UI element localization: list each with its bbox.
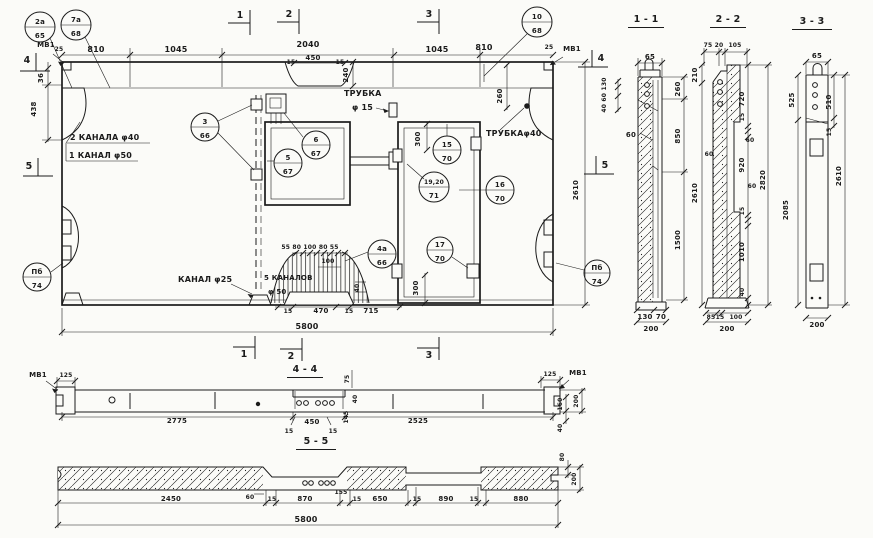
callout-top-label: 19,20 [424,179,444,186]
callout-top-label: Пб [591,264,602,272]
dim-label: 20 [715,42,724,49]
callout-top-label: 6 [313,136,318,144]
dim-label: 60 [748,183,757,190]
callout-top-label: 17 [435,241,445,249]
callout-top-label: 2а [35,18,45,26]
callout-circle: 7а68 [61,10,91,40]
callout-top-label: 7а [71,16,81,24]
callout-circle: 2а65 [25,12,55,42]
dim-label: 2610 [572,180,580,200]
dim-label: 15 [268,496,277,503]
dim-label: 300 [414,131,422,146]
dim-label: 2450 [161,495,181,503]
callout-top-label: 15 [442,141,452,149]
dim-label: 870 [297,495,312,503]
dim-label: 200 [573,394,580,407]
dim-label: 260 [674,81,682,96]
dim-label: 60 [705,151,714,158]
svg-text:4: 4 [598,53,605,64]
dim-label: 60 [246,494,255,501]
callout-circle: Пб74 [23,263,51,291]
callout-bottom-label: 68 [71,30,81,38]
section-title: 3 - 3 [800,16,825,27]
section-4-4: 4 - 4 МВ1 125 2775 75 40 145 15 450 15 2… [29,364,587,435]
svg-text:5: 5 [26,161,33,172]
dim-label: 650 [372,495,387,503]
callout-top-label: 10 [532,13,542,21]
dim-label: 2820 [759,170,767,190]
dim-label: 40 [354,284,361,293]
dim-label: 25 [545,44,554,51]
callout-circle: 567 [274,149,302,177]
anchor-label-mv1: МВ1 [563,45,581,53]
embed-box [266,94,286,113]
dim-label: 200 [809,321,824,329]
dim-label: 75 [704,42,713,49]
dim-label: 880 [513,495,528,503]
dim-label: 2040 [296,40,319,49]
dim-label: 890 [438,495,453,503]
overall-dim: 5800 [295,322,318,331]
tube-15-symbol [389,103,397,117]
label-tube-15: φ 15 [352,103,373,112]
callout-circle: 1570 [433,136,461,164]
section-title: 4 - 4 [293,364,318,375]
dim-label: 2610 [691,183,699,203]
callout-circle: 1670 [486,176,514,204]
lifting-loop [813,64,822,75]
dim-label: 25 [55,46,64,53]
callout-bottom-label: 70 [442,155,452,163]
dim-label: 125 [59,372,72,379]
svg-text:3: 3 [426,9,433,20]
dim-label: 155 [334,489,347,496]
callout-circle: 1068 [522,7,552,37]
dim-label: 40 [557,424,564,433]
section-2-2: 2 - 2 75 20 105 210 2610 720 15 60 920 6… [691,14,772,333]
svg-text:3: 3 [426,350,433,361]
section-title: 2 - 2 [716,14,741,25]
dim-label: 525 [788,92,796,107]
blueprint-page: 25 810 1045 2040 1045 810 25 15 450 15 2… [0,0,873,538]
dim-label: 15 [826,128,833,137]
callout-circle: 1770 [427,237,453,263]
svg-text:2: 2 [286,9,293,20]
dim-label: 15 [739,113,746,122]
svg-text:1: 1 [241,349,248,360]
anchor-label-mv1: МВ1 [569,369,587,377]
dim-label: 510 [825,94,833,109]
section-title: 5 - 5 [304,436,329,447]
dim-label: 15 [345,308,354,315]
label-tube: ТРУБКА [344,89,382,98]
dim-label: 200 [571,472,578,485]
dim-label: 75 [344,375,351,384]
dim-label: 450 [305,54,320,62]
callout-top-label: 5 [285,154,290,162]
callout-circle: 4а66 [368,240,396,268]
callout-bottom-label: 74 [592,278,602,286]
dim-label: 2525 [408,417,428,425]
dim-label: 40 60 130 [601,77,608,112]
dim-label: 2085 [782,200,790,220]
svg-text:4: 4 [24,55,31,66]
dim-label: 470 [313,307,328,315]
channel-spacing-dims: 55 80 100 80 55 [281,244,338,251]
label-tube-40: ТРУБКАφ40 [486,129,542,138]
dim-label: 1010 [738,242,746,262]
callout-top-label: 3 [202,118,207,126]
dim-label: 210 [691,67,699,82]
callout-bottom-label: 67 [283,168,293,176]
dim-label: 850 [674,128,682,143]
dim-label: 70 [656,313,666,321]
callout-bottom-label: 67 [311,150,321,158]
dim-label: 810 [475,43,493,52]
label-5-channels-dia: φ 50 [268,288,286,296]
svg-text:1: 1 [237,10,244,21]
dim-label: 65 [812,52,822,60]
label-5-channels: 5 КАНАЛОВ [264,274,313,282]
dim-label: 450 [304,418,319,426]
dim-label: 15 [470,496,479,503]
callout-bottom-label: 74 [32,282,42,290]
dim-label: 65 [645,53,655,61]
dim-label: 40 [739,288,746,297]
dim-label: 60 [626,131,636,139]
section-1-1: 1 - 1 65 40 60 130 60 260 850 1500 130 7… [601,14,688,333]
svg-text:5: 5 [602,160,609,171]
dim-label: 100 [729,314,742,321]
callout-bottom-label: 66 [377,259,387,267]
section-title: 1 - 1 [634,14,659,25]
dim-label: 100 [321,258,334,265]
dim-label: 15 [285,428,294,435]
tube-40-symbol [524,103,530,109]
callout-bottom-label: 66 [200,132,210,140]
dim-label: 715 [363,307,378,315]
label-1-channel-50: 1 КАНАЛ φ50 [69,151,132,160]
dim-label: 15 [329,428,338,435]
dim-label: 15 [353,496,362,503]
technical-drawing-canvas: 25 810 1045 2040 1045 810 25 15 450 15 2… [0,0,873,538]
left-edge-recess [62,206,79,268]
dim-label: 2775 [167,417,187,425]
section-5-5: 5 - 5 2450 60 15 870 155 15 650 15 890 1… [58,436,584,528]
callout-circle: Пб74 [584,260,610,286]
svg-text:2: 2 [288,351,295,362]
callout-bottom-label: 65 [35,32,45,40]
callout-top-label: 16 [495,181,505,189]
dim-label: 15 [739,207,746,216]
dim-label: 438 [30,101,38,116]
dim-label: 240 [342,67,350,82]
callout-circle: 667 [302,131,330,159]
dim-label: 36 [37,73,45,83]
callout-bottom-label: 68 [532,27,542,35]
plan-view: 25 810 1045 2040 1045 810 25 15 450 15 2… [20,9,614,362]
callout-bottom-label: 70 [495,195,505,203]
dim-label: 40 [352,395,359,404]
dim-label: 80 [559,453,566,462]
dim-label: 260 [496,88,504,103]
dim-label: 125 [543,371,556,378]
dim-label: 145 [343,410,350,423]
dim-label: 810 [87,45,105,54]
callout-top-label: 4а [377,245,387,253]
dim-label: 105 [728,42,741,49]
callout-circle: 366 [191,113,219,141]
dim-label: 1045 [425,45,448,54]
callout-top-label: Пб [31,268,42,276]
anchor-label-mv1: МВ1 [29,371,47,379]
callout-bottom-label: 70 [435,255,445,263]
section-3-3: 3 - 3 65 525 2085 510 15 2610 200 [782,16,850,329]
label-2-channels-40: 2 КАНАЛА φ40 [70,133,140,142]
overall-dim: 5800 [294,515,317,524]
dim-label: 300 [412,280,420,295]
dim-label: 200 [719,325,734,333]
callout-bottom-label: 71 [429,192,439,200]
dim-label: 720 [738,91,746,106]
label-channel-25: КАНАЛ φ25 [178,275,232,284]
dim-label: 200 [643,325,658,333]
callout-circle: 19,2071 [419,172,449,202]
dim-label: 2610 [835,166,843,186]
dim-label: 1045 [164,45,187,54]
dim-label: 920 [738,157,746,172]
dim-label: 1500 [674,230,682,250]
